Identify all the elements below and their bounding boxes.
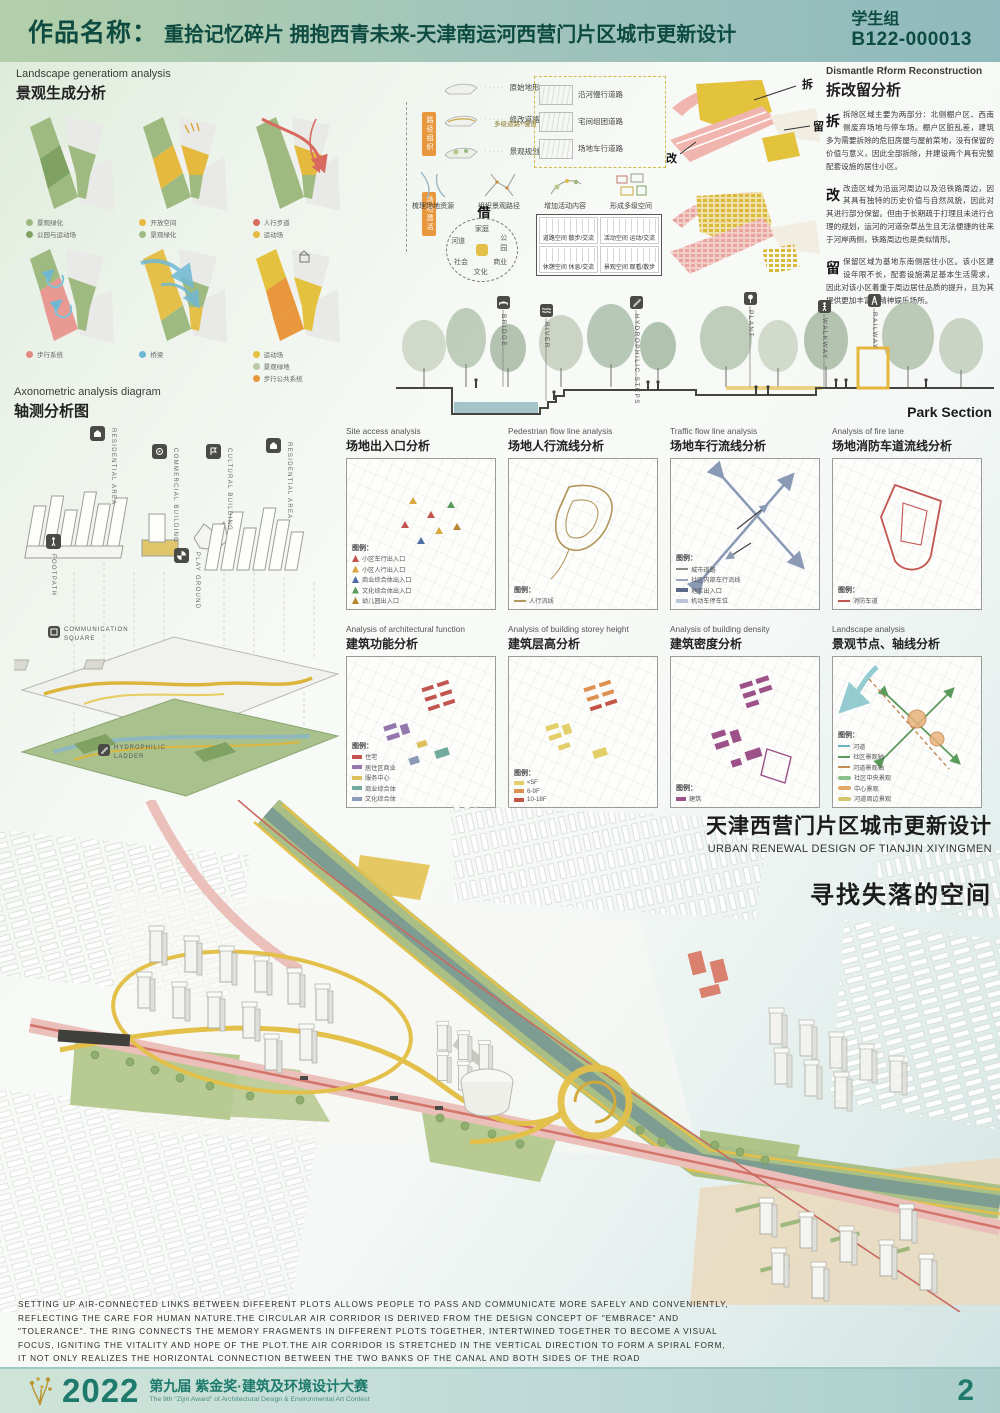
road-type: 沿河慢行道路 (539, 81, 661, 108)
page-number: 2 (957, 1374, 974, 1408)
panel-box: 图例： 城市道路 社区内部车行流线 地库出入口 机动车停车位 (670, 458, 820, 610)
legend-label: 住宅 (365, 752, 377, 761)
entry-code: B122-000013 (851, 29, 972, 51)
legend-swatch (352, 776, 362, 780)
legend-label: 社区中央景观 (854, 773, 891, 782)
panel-legend: 图例： 住宅 居住区商业 服务中心 商业综合体 文化综合体 (352, 741, 396, 804)
circle-node: 公园 (500, 233, 511, 253)
section-label: PLANT (747, 310, 754, 338)
legend-label: 社区内部车行流线 (691, 575, 741, 584)
section-label: HYDROPHILIC STEPS (633, 314, 640, 405)
circle-node: 家庭 (475, 224, 489, 234)
circle-node: 河道 (451, 236, 465, 246)
dismantle-title-cn: 拆改留分析 (826, 79, 994, 100)
matrix-label: 道路空间 散步/交流 (543, 233, 594, 242)
legend-swatch (838, 600, 850, 602)
axon-label: HYDROPHILIC LADDER (114, 744, 174, 762)
panel-title-en: Analysis of architectural function (346, 624, 496, 634)
axon-title-en: Axonometric analysis diagram (14, 386, 346, 398)
playground-icon (174, 548, 189, 563)
terrain-sketch (442, 78, 480, 96)
legend-swatch (514, 781, 524, 785)
matrix-sketch (602, 248, 657, 262)
axon-label: RESIDENTIAL AREA (110, 428, 116, 506)
paragraph-text: 拆除区域主要为两部分：北侧棚户区、西南侧废弃场地与停车场。棚户区脏乱差，建筑多为… (826, 110, 994, 171)
matrix-cell: 休憩空间 休息/交流 (539, 246, 598, 273)
legend-swatch (26, 231, 33, 238)
residential-cluster-east (205, 508, 308, 570)
flow-tag: 路径组织 (422, 112, 436, 156)
panel-title-en: Site access analysis (346, 426, 496, 436)
residential-icon (90, 426, 105, 441)
landscape-title-cn: 景观生成分析 (16, 82, 346, 103)
poster-title: 作品名称：重拾记忆碎片 拥抱西青未来-天津南运河西营门片区城市更新设计 (28, 13, 736, 49)
title-label: 作品名称： (28, 19, 158, 47)
panel-box: 图例： 住宅 居住区商业 服务中心 商业综合体 文化综合体 (346, 656, 496, 808)
legend-label: 小区人行出入口 (362, 565, 405, 574)
residential-cluster-west (25, 492, 133, 558)
panel-title-cn: 建筑密度分析 (670, 635, 820, 652)
panel-box: 图例： <5F 6-9F 10-18F (508, 656, 658, 808)
walkway-icon (818, 300, 831, 313)
legend-label: 幼儿园出入口 (362, 596, 399, 605)
panel-title-en: Analysis of building density (670, 624, 820, 634)
legend-swatch (253, 231, 260, 238)
landscape-diagram-grid: 景观绿化 公园与运动场 开放空间 景观绿化 人行步道 运动场 步行系统 桥梁 (16, 111, 346, 383)
circle-node: 商业 (493, 257, 507, 267)
park-section-drawing (396, 288, 994, 422)
commercial-icon (152, 444, 167, 459)
paragraph-lead: 改 (826, 184, 840, 208)
map-label-demolish: 拆 (802, 76, 813, 92)
matrix-label: 休憩空间 休息/交流 (543, 262, 594, 271)
communication-square-icon (48, 626, 60, 638)
flow-step: ·····景观规划 (442, 142, 540, 160)
axon-label: FOOTPATH (50, 554, 56, 596)
panel-title-cn: 场地出入口分析 (346, 437, 496, 454)
legend-label: 河道景观轴 (853, 763, 884, 772)
section-label: BRIDGE (500, 314, 507, 347)
legend-label: 地库出入口 (691, 586, 722, 595)
process-label: 形成多级空间 (610, 201, 652, 211)
panel-box: 图例： 河道 社区景观轴 河道景观轴 社区中央景观 中心景观 河道周边景观 (832, 656, 982, 808)
road-sketch (539, 112, 573, 132)
paragraph-lead: 留 (826, 257, 840, 281)
road-type: 宅间组团道路 (539, 108, 661, 135)
borrow-center-icon (476, 244, 488, 256)
legend-title: 图例： (514, 768, 547, 778)
legend-swatch (352, 597, 359, 604)
matrix-cell: 活动空间 运动/交流 (600, 217, 659, 244)
zijin-award-logo (26, 1375, 54, 1407)
legend-swatch (838, 745, 850, 747)
landscape-diagram: 运动场 景观绿地 步行公共系统 (243, 243, 346, 383)
panel-pedestrian-flow: Pedestrian flow line analysis 场地人行流线分析 图… (508, 426, 658, 610)
landscape-title-en: Landscape generatiom analysis (16, 68, 346, 80)
design-description: SETTING UP AIR-CONNECTED LINKS BETWEEN D… (18, 1298, 690, 1366)
panel-legend: 图例： 城市道路 社区内部车行流线 地库出入口 机动车停车位 (676, 553, 741, 605)
legend-label: 6-9F (527, 788, 540, 795)
project-title-block: 天津西营门片区城市更新设计 URBAN RENEWAL DESIGN OF TI… (640, 810, 992, 910)
park-section: BRIDGE RIVER HYDROPHILIC STEPS PLANT WAL… (396, 288, 994, 422)
dismantle-map-illustration (666, 76, 824, 294)
generation-flowchart: 路径组织 场地激活 ·····原始地形 ·····修改道路 ·····景观规划 … (398, 74, 666, 288)
project-title-en: URBAN RENEWAL DESIGN OF TIANJIN XIYINGME… (640, 843, 992, 855)
matrix-sketch (541, 248, 596, 262)
road-label: 宅间组团道路 (578, 116, 623, 127)
panel-title-cn: 场地车行流线分析 (670, 437, 820, 454)
legend-title: 图例： (838, 585, 878, 595)
road-sketch (539, 139, 573, 159)
legend-label: 商业综合体 (365, 784, 396, 793)
legend-swatch (139, 351, 146, 358)
panel-legend: 图例： 河道 社区景观轴 河道景观轴 社区中央景观 中心景观 河道周边景观 (838, 730, 891, 803)
legend-swatch (514, 789, 524, 793)
legend-swatch (139, 219, 146, 226)
legend-swatch (676, 579, 688, 581)
flow-note: 多级道路+慢道 (494, 118, 537, 128)
panel-legend: 图例： 消防车道 (838, 585, 878, 606)
road-type: 场地车行道路 (539, 135, 661, 162)
axon-drawing (14, 422, 346, 802)
legend-swatch (838, 776, 851, 780)
panel-box: 图例： 消防车道 (832, 458, 982, 610)
section-label: RIVER (543, 322, 550, 349)
legend-swatch (352, 587, 359, 594)
legend-label: 小区车行出入口 (362, 554, 405, 563)
trees (402, 302, 983, 387)
site-diagram-3 (246, 111, 342, 215)
footer-titles: 第九届 紫金奖·建筑及环境设计大赛 The 9th "Zijin Award" … (149, 1379, 369, 1404)
panel-traffic-flow: Traffic flow line analysis 场地车行流线分析 图例： … (670, 426, 820, 610)
description-line: IT NOT ONLY REALIZES THE HORIZONTAL CONN… (18, 1352, 690, 1366)
footer-title-cn: 第九届 紫金奖·建筑及环境设计大赛 (149, 1379, 369, 1394)
roads-sketch (442, 110, 480, 128)
poster: 作品名称：重拾记忆碎片 拥抱西青未来-天津南运河西营门片区城市更新设计 学生组 … (0, 0, 1000, 1413)
axon-label: CULTURAL BUILDING (226, 448, 232, 531)
legend-label: 开放空间 (150, 217, 176, 227)
dismantle-paragraph: 拆拆除区域主要为两部分：北侧棚户区、西南侧废弃场地与停车场。棚户区脏乱差，建筑多… (826, 109, 994, 174)
landscape-sketch (442, 142, 480, 160)
legend-label: <5F (527, 779, 538, 786)
dismantle-title-en: Dismantle Rform Reconstruction (826, 66, 994, 77)
description-line: REFLECTING THE CARE FOR HUMAN NATURE.THE… (18, 1312, 690, 1326)
residential-icon (266, 438, 281, 453)
description-line: FOCUS, IGNITING THE VITALITY AND HOPE OF… (18, 1339, 690, 1353)
park-section-caption: Park Section (907, 404, 992, 420)
description-line: "TOLERANCE". THE RING CONNECTS THE MEMOR… (18, 1325, 690, 1339)
description-line: SETTING UP AIR-CONNECTED LINKS BETWEEN D… (18, 1298, 690, 1312)
site-diagram-2 (133, 111, 229, 215)
circle-node: 文化 (474, 267, 488, 277)
legend-swatch (838, 766, 850, 768)
axon-label: COMMUNICATION SQUARE (64, 626, 124, 644)
panel-title-cn: 建筑层高分析 (508, 635, 658, 652)
legend-swatch (676, 588, 688, 592)
panel-legend: 图例： <5F 6-9F 10-18F (514, 768, 547, 804)
legend-label: 商业综合体出入口 (362, 575, 412, 584)
road-types-box: 沿河慢行道路 宅间组团道路 场地车行道路 (534, 76, 666, 168)
project-slogan: 寻找失落的空间 (640, 875, 992, 910)
legend-swatch (352, 555, 359, 562)
legend-swatch (352, 566, 359, 573)
legend-label: 城市道路 (691, 565, 716, 574)
process-sketch (543, 170, 587, 200)
legend-label: 社区景观轴 (853, 752, 884, 761)
site-diagram-4 (20, 243, 116, 347)
matrix-label: 景观空间 观看/散步 (604, 262, 655, 271)
legend-label: 步行系统 (37, 349, 63, 359)
legend-label: 公园与运动场 (37, 229, 76, 239)
matrix-cell: 景观空间 观看/散步 (600, 246, 659, 273)
legend-swatch (352, 576, 359, 583)
hydrophilic-ladder-icon (98, 744, 110, 756)
legend-swatch (139, 231, 146, 238)
dismantle-analysis-section: Dismantle Rform Reconstruction 拆改留分析 拆拆除… (826, 66, 994, 308)
analysis-grid: Site access analysis 场地出入口分析 图例： 小区车行出入口… (346, 426, 996, 808)
legend-label: 文化综合体出入口 (362, 586, 412, 595)
steps-icon (630, 296, 643, 309)
legend-label: 运动场 (264, 349, 284, 359)
map-label-retain: 留 (813, 118, 824, 134)
panel-storey-height: Analysis of building storey height 建筑层高分… (508, 624, 658, 808)
landscape-diagram: 步行系统 (16, 243, 119, 383)
panel-box: 图例： 小区车行出入口 小区人行出入口 商业综合体出入口 文化综合体出入口 幼儿… (346, 458, 496, 610)
panel-density: Analysis of building density 建筑密度分析 图例： … (670, 624, 820, 808)
legend-title: 图例： (676, 553, 741, 563)
process-step: 梳理场地资源 (402, 170, 464, 211)
legend-label: 景观绿地 (264, 361, 290, 371)
panel-title-en: Pedestrian flow line analysis (508, 426, 658, 436)
legend-title: 图例： (838, 730, 891, 740)
cultural-icon (206, 444, 221, 459)
site-diagram-6 (246, 243, 342, 347)
legend-label: 步行公共系统 (264, 373, 303, 383)
legend-swatch (838, 756, 850, 758)
legend-swatch (253, 219, 260, 226)
legend-swatch (253, 363, 260, 370)
footer-title-en: The 9th "Zijin Award" of Architectural D… (149, 1396, 369, 1403)
legend-label: 消防车道 (853, 596, 878, 605)
dismantle-paragraph: 改改造区域为沿运河周边以及沿铁路周边，因其具有独特的历史价值与自然风貌，因此对其… (826, 183, 994, 248)
legend-label: 景观绿化 (37, 217, 63, 227)
legend-label: 服务中心 (365, 773, 390, 782)
panel-legend: 图例： 人行流线 (514, 585, 554, 606)
panel-function: Analysis of architectural function 建筑功能分… (346, 624, 496, 808)
footpath-icon (46, 534, 61, 549)
legend-title: 图例： (676, 783, 701, 793)
legend-swatch (26, 219, 33, 226)
matrix-sketch (602, 219, 657, 233)
leader-dots: ····· (484, 148, 506, 155)
panel-title-cn: 建筑功能分析 (346, 635, 496, 652)
panel-fire-lane: Analysis of fire lane 场地消防车道流线分析 图例： 消防车… (832, 426, 982, 610)
footer-year: 2022 (62, 1372, 139, 1410)
section-label: WALKWAY (821, 318, 828, 360)
process-step: 增加活动内容 (534, 170, 596, 211)
legend-label: 中心景观 (854, 784, 879, 793)
axon-label: PLAY GROUND (194, 552, 200, 609)
panel-landscape-nodes: Landscape analysis 景观节点、轴线分析 图例： 河道 社区景观… (832, 624, 982, 808)
legend-swatch (253, 351, 260, 358)
plant-icon (744, 292, 757, 305)
flow-step: ·····原始地形 (442, 78, 540, 96)
legend-swatch (676, 599, 688, 603)
panel-title-en: Analysis of building storey height (508, 624, 658, 634)
legend-label: 人行流线 (529, 596, 554, 605)
road-sketch (539, 85, 573, 105)
legend-title: 图例： (514, 585, 554, 595)
matrix-label: 活动空间 运动/交流 (604, 233, 655, 242)
space-activity-matrix: 道路空间 散步/交流 活动空间 运动/交流 休憩空间 休息/交流 景观空间 观看… (536, 214, 662, 276)
paragraph-lead: 拆 (826, 110, 840, 134)
landscape-diagram: 景观绿化 公园与运动场 (16, 111, 119, 239)
axonometric-section: Axonometric analysis diagram 轴测分析图 (14, 386, 346, 794)
legend-swatch (514, 600, 526, 602)
legend-label: 河道 (853, 742, 865, 751)
project-title-cn: 天津西营门片区城市更新设计 (640, 810, 992, 840)
dismantle-maps: 拆 改 留 (666, 76, 824, 294)
panel-title-cn: 景观节点、轴线分析 (832, 635, 982, 652)
legend-swatch (253, 375, 260, 382)
bridge-icon (497, 296, 510, 309)
panel-site-access: Site access analysis 场地出入口分析 图例： 小区车行出入口… (346, 426, 496, 610)
road-label: 沿河慢行道路 (578, 89, 623, 100)
process-sketch (477, 170, 521, 200)
paragraph-text: 改造区域为沿运河周边以及沿铁路周边，因其具有独特的历史价值与自然风貌，因此对其进… (826, 184, 994, 245)
leader-dots: ····· (484, 84, 506, 91)
entry-info: 学生组 B122-000013 (851, 11, 972, 51)
title-text: 重拾记忆碎片 拥抱西青未来-天津南运河西营门片区城市更新设计 (164, 24, 736, 46)
legend-label: 人行步道 (264, 217, 290, 227)
legend-label: 景观绿化 (150, 229, 176, 239)
legend-swatch (26, 351, 33, 358)
entry-group: 学生组 (851, 11, 972, 29)
section-label: RAILWAY (871, 312, 878, 350)
panel-box: 图例： 人行流线 (508, 458, 658, 610)
legend-label: 运动场 (264, 229, 284, 239)
map-label-modify: 改 (666, 150, 677, 166)
legend-title: 图例： (352, 741, 396, 751)
legend-title: 图例： (352, 543, 412, 553)
matrix-sketch (541, 219, 596, 233)
panel-title-cn: 场地消防车道流线分析 (832, 437, 982, 454)
railway-icon (868, 294, 881, 307)
panel-title-en: Analysis of fire lane (832, 426, 982, 436)
site-diagram-1 (20, 111, 116, 215)
axon-label: RESIDENTIAL AREA (286, 442, 292, 520)
river-icon (540, 304, 553, 317)
landscape-diagram: 开放空间 景观绿化 (129, 111, 232, 239)
landscape-analysis-section: Landscape generatiom analysis 景观生成分析 景观绿… (16, 68, 346, 383)
legend-swatch (676, 568, 688, 570)
site-diagram-5 (133, 243, 229, 347)
landscape-diagram: 桥梁 (129, 243, 232, 383)
panel-title-cn: 场地人行流线分析 (508, 437, 658, 454)
panel-legend: 图例： 小区车行出入口 小区人行出入口 商业综合体出入口 文化综合体出入口 幼儿… (352, 543, 412, 606)
panel-box: 图例： 建筑 (670, 656, 820, 808)
process-sketch (609, 170, 653, 200)
process-label: 增加活动内容 (544, 201, 586, 211)
legend-label: 桥梁 (150, 349, 163, 359)
header: 作品名称：重拾记忆碎片 拥抱西青未来-天津南运河西营门片区城市更新设计 学生组 … (0, 0, 1000, 62)
axon-title-cn: 轴测分析图 (14, 400, 346, 421)
matrix-cell: 道路空间 散步/交流 (539, 217, 598, 244)
legend-label: 机动车停车位 (691, 596, 728, 605)
legend-swatch (352, 786, 362, 790)
footer: 2022 第九届 紫金奖·建筑及环境设计大赛 The 9th "Zijin Aw… (0, 1367, 1000, 1413)
axon-label: COMMERCIAL BUILDING (172, 448, 178, 543)
legend-swatch (352, 755, 362, 759)
legend-swatch (352, 765, 362, 769)
circle-node: 社会 (454, 257, 468, 267)
legend-swatch (838, 786, 851, 790)
borrow-circle-diagram: 借 家庭 公园 商业 文化 社会 河道 (440, 210, 528, 286)
process-step: 形成多级空间 (600, 170, 662, 211)
panel-title-en: Traffic flow line analysis (670, 426, 820, 436)
process-sketch (411, 170, 455, 200)
panel-title-en: Landscape analysis (832, 624, 982, 634)
legend-label: 居住区商业 (365, 763, 396, 772)
borrow-ring: 家庭 公园 商业 文化 社会 河道 (446, 218, 518, 282)
road-label: 场地车行道路 (578, 143, 623, 154)
landscape-diagram: 人行步道 运动场 (243, 111, 346, 239)
